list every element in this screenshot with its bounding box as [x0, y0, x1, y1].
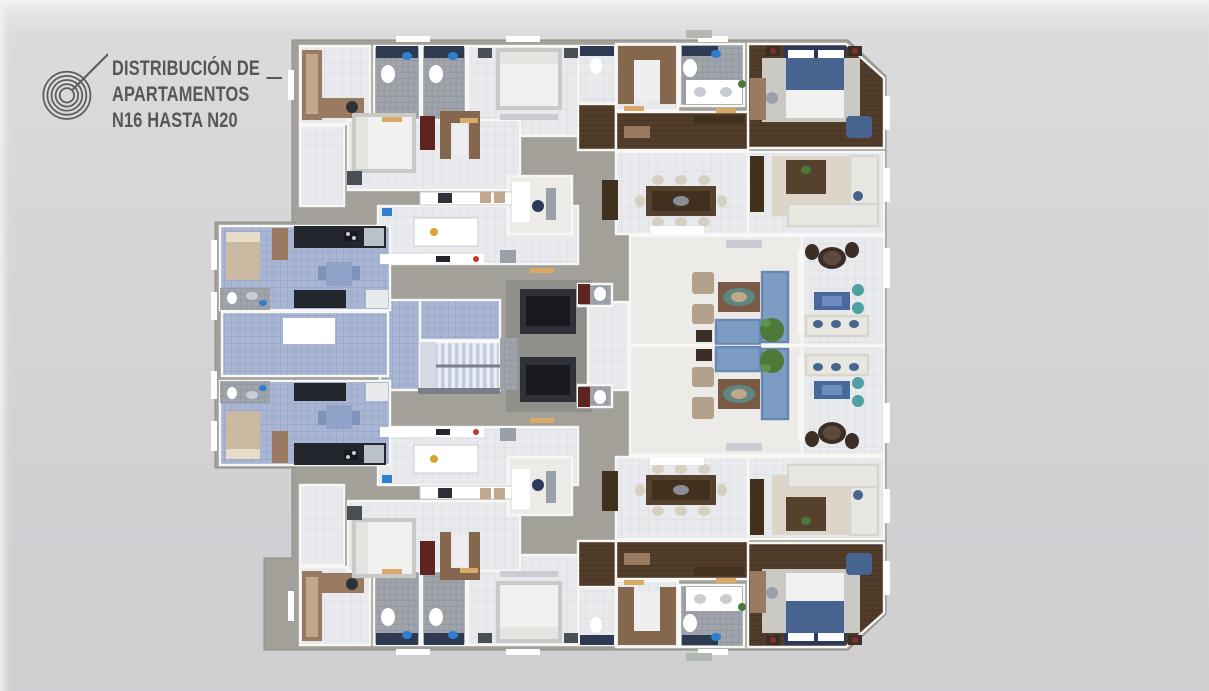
toilet — [227, 292, 237, 304]
toilet — [429, 65, 443, 83]
dining-chair — [652, 175, 664, 185]
brand-text: DISTRIBUCIÓN DE APARTAMENTOS N16 HASTA N… — [112, 56, 265, 134]
sofa — [850, 156, 878, 208]
dining-chair — [717, 195, 727, 207]
table — [326, 262, 352, 286]
bed-pillows — [356, 117, 368, 169]
counter-box — [494, 192, 505, 203]
window-sill — [396, 36, 430, 42]
balcony-chair — [845, 242, 859, 258]
chair — [352, 266, 360, 280]
door-sill — [716, 108, 736, 113]
stair-landing-floor — [420, 300, 500, 340]
console-table — [694, 116, 744, 124]
pillow — [813, 320, 823, 328]
window-sill — [211, 292, 217, 320]
logo-ring — [60, 88, 74, 102]
dining-chair — [698, 175, 710, 185]
title-line2: APARTAMENTOS — [112, 82, 265, 108]
coffee-machine — [438, 193, 452, 203]
wall-art — [382, 208, 392, 216]
cooktop — [436, 256, 450, 262]
balcony-rug-inner — [822, 296, 842, 306]
ac-unit — [686, 30, 712, 38]
sink — [402, 52, 412, 60]
toilet — [594, 287, 606, 301]
appliance — [366, 290, 388, 308]
six-logo-icon — [36, 38, 108, 124]
door-sill — [382, 117, 402, 122]
kitchen-sink — [500, 250, 516, 263]
toilet — [381, 65, 395, 83]
plant — [738, 80, 746, 88]
bed-blanket — [786, 58, 844, 90]
slide-background: DISTRIBUCIÓN DE APARTAMENTOS N16 HASTA N… — [0, 0, 1209, 691]
bed-pillows — [500, 52, 558, 64]
core-hall-floor — [588, 302, 628, 390]
nightstand — [478, 48, 492, 58]
burner — [352, 236, 356, 240]
balcony-chair — [805, 244, 819, 260]
pouf — [852, 284, 864, 296]
kitchen-island — [414, 218, 478, 246]
console-table — [726, 240, 762, 248]
shower-tile — [580, 46, 614, 56]
chair — [318, 266, 326, 280]
closet-inner — [453, 125, 467, 155]
toilet — [683, 59, 697, 77]
tv-console — [750, 156, 764, 212]
stool — [346, 101, 358, 113]
sofa — [788, 204, 878, 226]
dining-chair — [652, 217, 664, 227]
tall-cabinet — [602, 180, 618, 220]
pillow — [853, 191, 863, 201]
title-line1: DISTRIBUCIÓN DE — [112, 56, 260, 82]
desk — [750, 78, 766, 120]
armchair — [692, 272, 714, 294]
closet-unit — [660, 46, 676, 104]
bed-pillows — [226, 232, 260, 242]
bed-pillows — [788, 50, 814, 58]
window-sill — [884, 96, 890, 130]
sliding-door — [798, 250, 804, 334]
counter-box — [480, 192, 491, 203]
sink — [259, 300, 267, 306]
sink-steel — [364, 228, 384, 246]
lamp — [770, 48, 776, 54]
desk-chair — [766, 92, 778, 104]
dining-chair — [698, 217, 710, 227]
door-sill — [624, 106, 644, 111]
kitchen-counter — [294, 290, 346, 308]
bench — [624, 126, 650, 138]
stair-edge — [418, 388, 500, 394]
hall-floor — [300, 126, 344, 206]
window-sill — [884, 248, 890, 288]
elevator-cab — [526, 296, 570, 326]
dining-chair — [635, 195, 645, 207]
dresser — [347, 171, 362, 185]
brand-block: DISTRIBUCIÓN DE APARTAMENTOS N16 HASTA N… — [36, 38, 308, 134]
study-desk — [512, 182, 530, 222]
bed — [786, 90, 844, 118]
kitchen-counter — [380, 254, 484, 264]
door-sill — [460, 118, 478, 123]
bed-pillows — [818, 50, 844, 58]
shelf-ladder — [546, 188, 556, 220]
rug-pattern — [731, 292, 747, 302]
closet-inner — [634, 60, 660, 100]
plant — [801, 166, 811, 174]
window-sill — [506, 36, 540, 42]
dining-chair — [675, 175, 687, 185]
bowl — [430, 228, 438, 236]
toilet — [590, 58, 602, 74]
stove — [344, 231, 358, 241]
shower-tile — [424, 46, 464, 58]
sink — [246, 292, 258, 300]
sink — [711, 50, 721, 58]
plant — [761, 319, 771, 327]
dresser-red — [420, 116, 435, 150]
title-line3: N16 HASTA N20 — [112, 108, 265, 134]
elevator-cab — [526, 365, 570, 395]
logo-ring — [43, 72, 90, 119]
sink — [448, 52, 458, 60]
coffee-table — [786, 160, 826, 194]
nightstand — [564, 48, 578, 58]
window-sill — [884, 168, 890, 202]
foyer-wood-floor — [578, 104, 616, 150]
lamp — [852, 48, 858, 54]
title-rule — [266, 77, 282, 79]
vanity-sink — [720, 87, 732, 97]
side-table — [696, 330, 712, 342]
armchair — [692, 304, 714, 324]
study-chair — [532, 200, 544, 212]
pillow — [849, 320, 859, 328]
laundry-table — [283, 318, 335, 344]
logo-ring — [47, 76, 86, 115]
vanity-sink — [694, 87, 706, 97]
burner — [346, 232, 350, 236]
dresser — [272, 228, 288, 260]
dining-chair — [675, 217, 687, 227]
armchair — [846, 116, 872, 138]
stair-landing — [420, 342, 436, 390]
powder-counter — [578, 284, 590, 304]
bed-bench — [500, 114, 558, 120]
sofa-blue — [716, 320, 760, 344]
logo-tail — [84, 51, 108, 79]
door-sill — [530, 268, 554, 273]
centerpiece — [673, 196, 689, 206]
closet-unit — [440, 111, 451, 159]
sideboard — [650, 226, 704, 234]
balcony-table-top — [823, 251, 841, 265]
core-lobby-floor — [500, 338, 518, 390]
window-sill — [211, 240, 217, 270]
pillow — [831, 320, 841, 328]
kettle — [473, 256, 479, 262]
pouf — [852, 302, 864, 314]
